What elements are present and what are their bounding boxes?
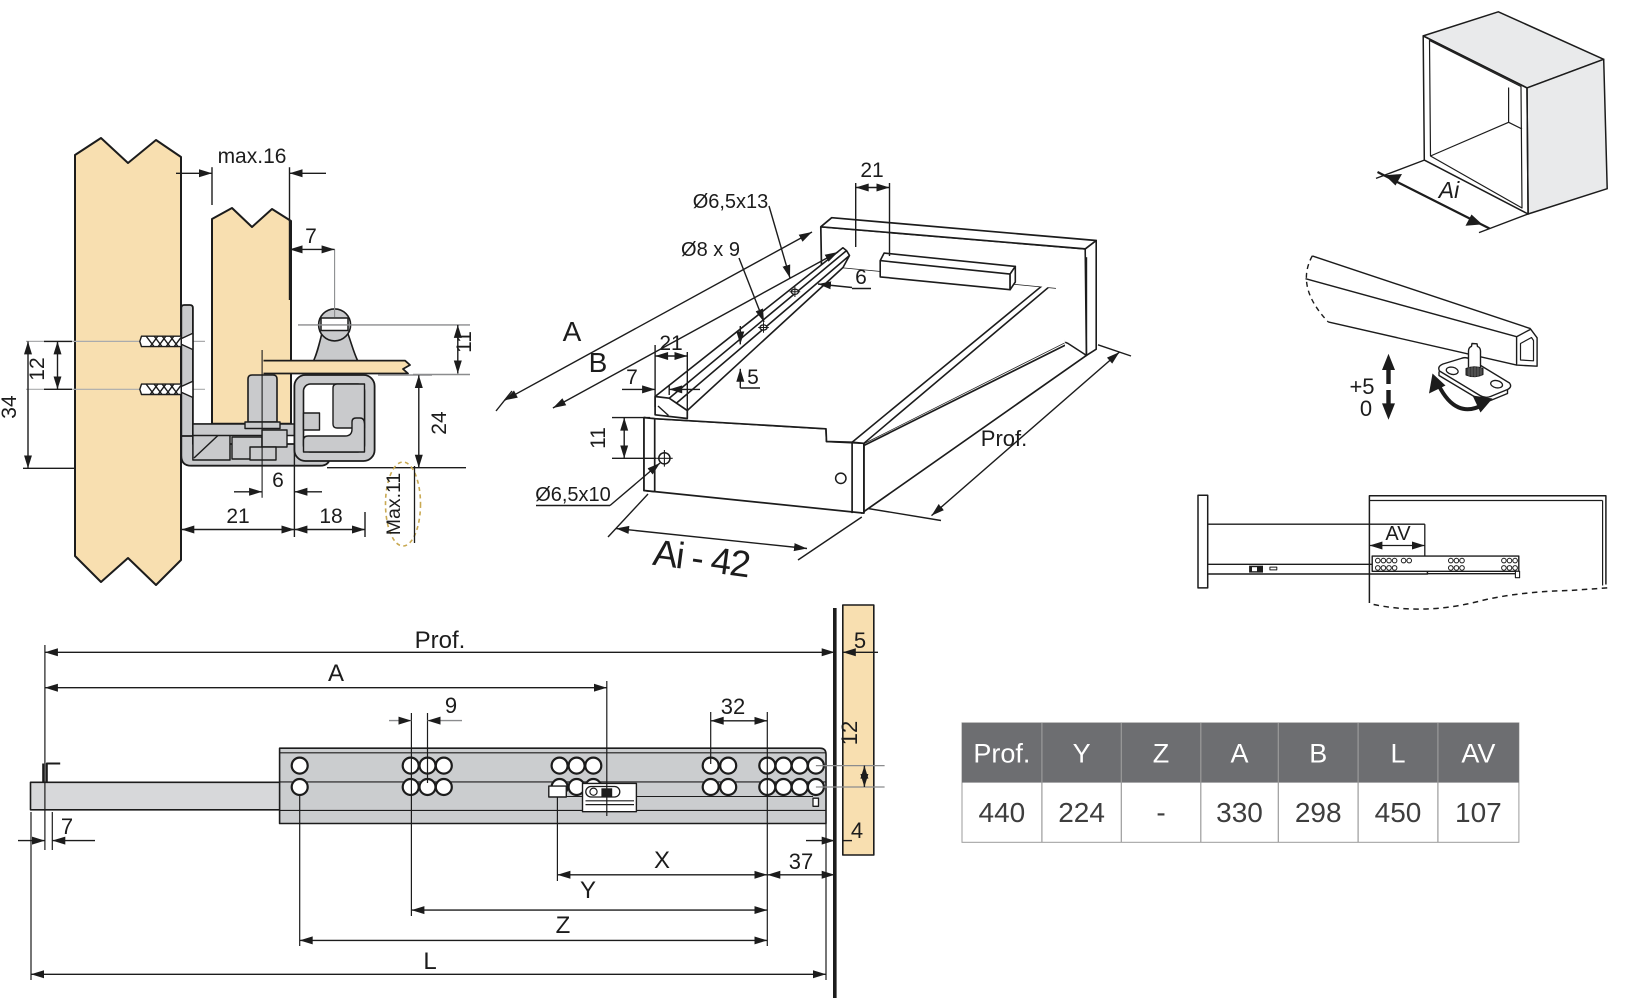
svg-text:A: A bbox=[328, 660, 344, 687]
svg-text:Y: Y bbox=[580, 877, 596, 904]
svg-text:21: 21 bbox=[659, 332, 682, 355]
svg-text:224: 224 bbox=[1058, 797, 1105, 828]
svg-text:Ai: Ai bbox=[1437, 177, 1460, 203]
svg-text:11: 11 bbox=[587, 427, 610, 449]
svg-text:32: 32 bbox=[721, 694, 745, 719]
svg-text:B: B bbox=[1309, 738, 1327, 768]
svg-text:A: A bbox=[1230, 738, 1248, 768]
svg-text:7: 7 bbox=[626, 366, 638, 389]
svg-text:max.16: max.16 bbox=[218, 145, 287, 168]
svg-text:Y: Y bbox=[1073, 738, 1091, 768]
svg-text:5: 5 bbox=[854, 628, 866, 653]
svg-text:L: L bbox=[423, 948, 436, 975]
svg-text:21: 21 bbox=[226, 505, 249, 528]
svg-text:107: 107 bbox=[1455, 797, 1502, 828]
svg-text:Prof.: Prof. bbox=[415, 627, 466, 654]
svg-text:Max.11: Max.11 bbox=[383, 473, 405, 536]
svg-text:440: 440 bbox=[979, 797, 1026, 828]
svg-text:7: 7 bbox=[61, 814, 73, 839]
svg-text:37: 37 bbox=[789, 849, 813, 874]
svg-text:AV: AV bbox=[1461, 738, 1495, 768]
svg-text:Z: Z bbox=[556, 912, 571, 939]
svg-text:24: 24 bbox=[428, 411, 451, 435]
svg-text:330: 330 bbox=[1216, 797, 1263, 828]
svg-text:Z: Z bbox=[1153, 738, 1170, 768]
svg-text:Ø8 x 9: Ø8 x 9 bbox=[681, 239, 740, 261]
svg-text:12: 12 bbox=[837, 721, 862, 745]
svg-text:11: 11 bbox=[453, 331, 476, 353]
svg-text:21: 21 bbox=[860, 159, 883, 182]
svg-text:AV: AV bbox=[1385, 523, 1411, 545]
svg-text:Ø6,5x13: Ø6,5x13 bbox=[693, 191, 769, 213]
svg-text:18: 18 bbox=[319, 505, 342, 528]
svg-text:6: 6 bbox=[855, 266, 867, 289]
svg-text:7: 7 bbox=[305, 225, 317, 248]
svg-text:Ø6,5x10: Ø6,5x10 bbox=[535, 484, 611, 506]
svg-text:12: 12 bbox=[26, 357, 49, 380]
svg-text:B: B bbox=[589, 347, 608, 378]
svg-text:-: - bbox=[1156, 797, 1165, 828]
svg-text:X: X bbox=[654, 847, 670, 874]
svg-text:A: A bbox=[563, 316, 582, 347]
svg-text:450: 450 bbox=[1375, 797, 1422, 828]
svg-text:6: 6 bbox=[272, 469, 284, 492]
svg-text:0: 0 bbox=[1360, 396, 1372, 421]
svg-text:4: 4 bbox=[851, 818, 863, 843]
svg-text:Ai - 42: Ai - 42 bbox=[651, 532, 752, 585]
svg-text:9: 9 bbox=[445, 693, 457, 718]
svg-text:L: L bbox=[1390, 738, 1405, 768]
svg-text:298: 298 bbox=[1295, 797, 1342, 828]
svg-text:Prof.: Prof. bbox=[973, 738, 1030, 768]
svg-text:34: 34 bbox=[0, 395, 21, 419]
svg-text:5: 5 bbox=[747, 366, 759, 389]
svg-text:Prof.: Prof. bbox=[981, 426, 1027, 451]
